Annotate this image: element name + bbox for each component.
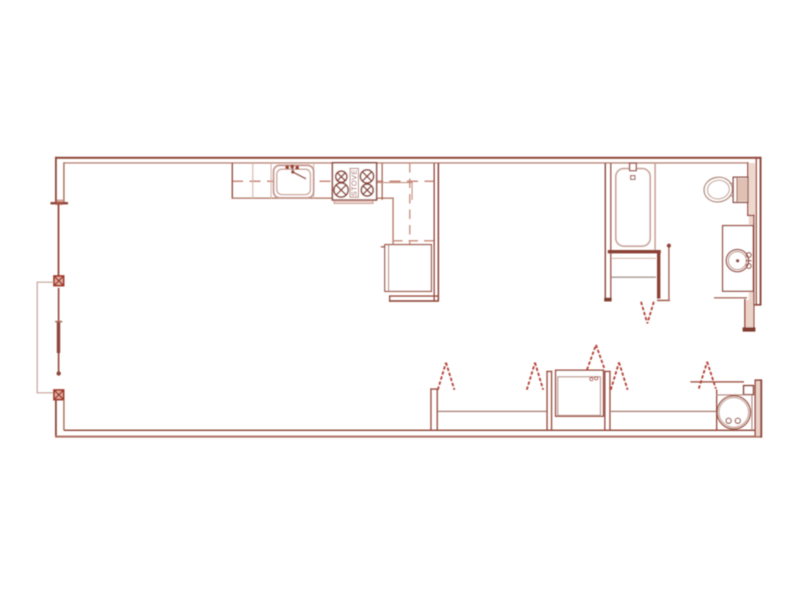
svg-text:STOVE: STOVE — [350, 169, 359, 196]
